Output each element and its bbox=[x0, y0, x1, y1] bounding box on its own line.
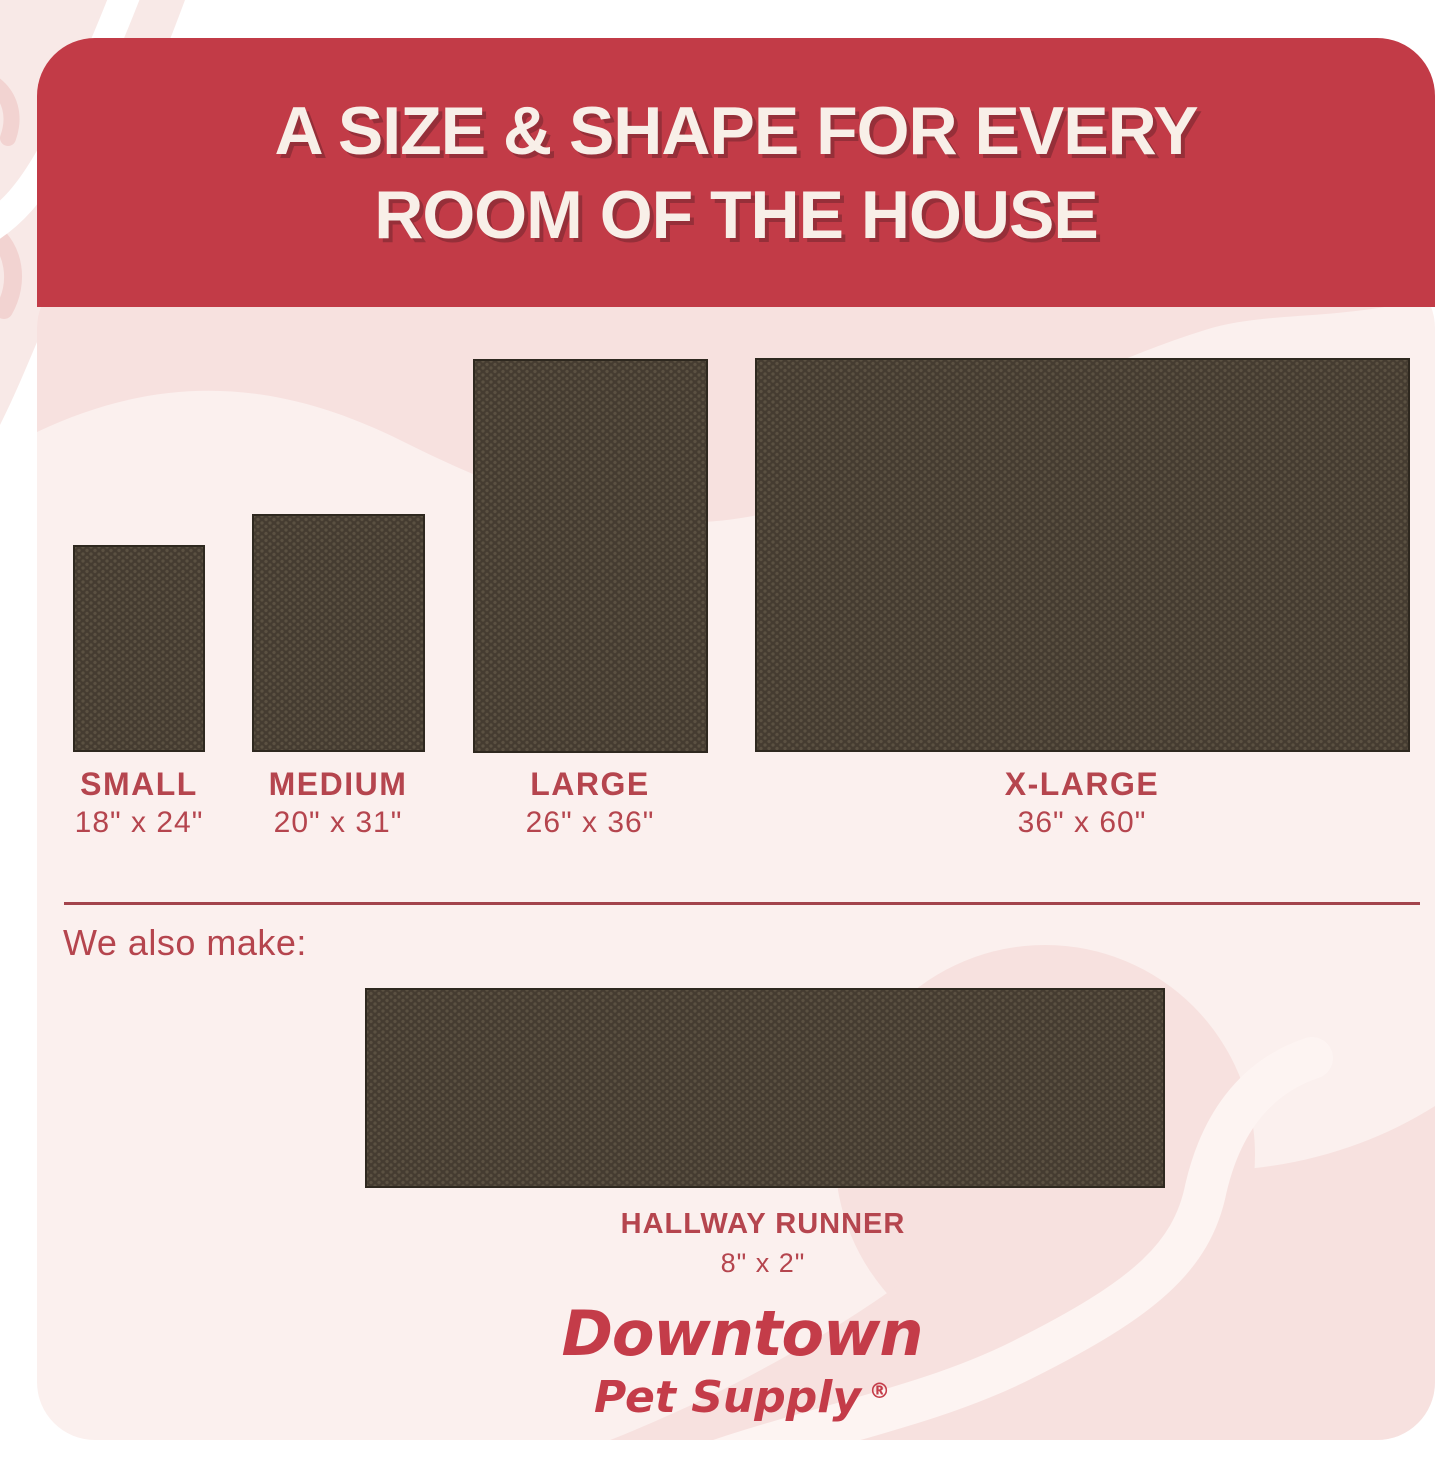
rug-swatch-medium bbox=[252, 514, 425, 752]
rug-swatch-xlarge bbox=[755, 358, 1410, 752]
section-divider bbox=[64, 902, 1420, 905]
brand-tagline: Pet Supply® bbox=[392, 1366, 1092, 1423]
size-dimensions: 8" x 2" bbox=[463, 1246, 1063, 1280]
rug-swatch-large bbox=[473, 359, 708, 753]
size-guide-poster: A SIZE & SHAPE FOR EVERY ROOM OF THE HOU… bbox=[0, 0, 1445, 1482]
brand-tagline-text: Pet Supply bbox=[594, 1372, 861, 1423]
size-label-large: LARGE 26" x 36" bbox=[440, 766, 740, 840]
poster-title-line-2: ROOM OF THE HOUSE bbox=[374, 173, 1097, 257]
poster-title-line-1: A SIZE & SHAPE FOR EVERY bbox=[274, 89, 1197, 173]
size-dimensions: 36" x 60" bbox=[932, 806, 1232, 840]
size-name: X-LARGE bbox=[932, 766, 1232, 802]
size-name: HALLWAY RUNNER bbox=[463, 1206, 1063, 1242]
rug-swatch-hallway-runner bbox=[365, 988, 1165, 1188]
size-label-xlarge: X-LARGE 36" x 60" bbox=[932, 766, 1232, 840]
brand-logo: Downtown Pet Supply® bbox=[392, 1302, 1092, 1423]
size-name: LARGE bbox=[440, 766, 740, 802]
rug-swatch-small bbox=[73, 545, 205, 752]
brand-name: Downtown bbox=[392, 1302, 1092, 1366]
header-banner: A SIZE & SHAPE FOR EVERY ROOM OF THE HOU… bbox=[37, 38, 1435, 307]
registered-trademark-symbol: ® bbox=[869, 1379, 890, 1403]
size-label-hallway-runner: HALLWAY RUNNER 8" x 2" bbox=[463, 1206, 1063, 1280]
also-make-label: We also make: bbox=[63, 922, 307, 964]
size-dimensions: 26" x 36" bbox=[440, 806, 740, 840]
